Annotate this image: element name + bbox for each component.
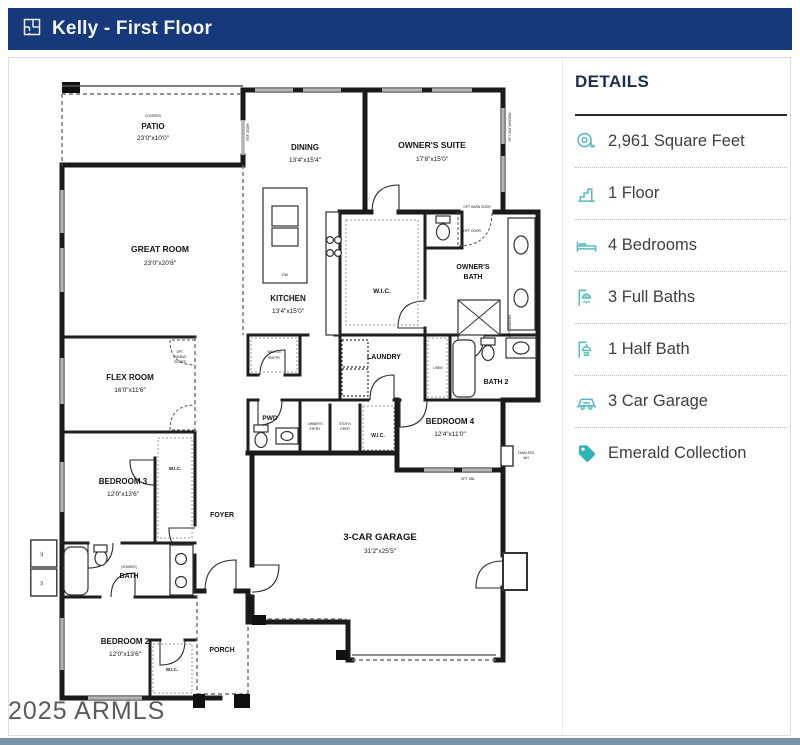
room-dims-owners-suite: 17'8"x15'0" bbox=[416, 156, 449, 163]
ann-stop-2: DROP bbox=[340, 427, 349, 431]
corner-blocks bbox=[62, 82, 348, 708]
stairs-icon bbox=[575, 182, 598, 205]
room-dims-great-room: 23'0"x20'8" bbox=[144, 260, 177, 267]
detail-item-garage: 3 Car Garage bbox=[575, 376, 787, 428]
room-dims-flex: 16'0"x11'6" bbox=[114, 387, 146, 394]
room-label-pwd: PWD bbox=[262, 415, 277, 422]
ann-pantry-2: PANTRY bbox=[268, 356, 282, 360]
room-label-bath2: BATH 2 bbox=[484, 379, 509, 386]
room-label-garage: 3-CAR GARAGE bbox=[343, 532, 416, 543]
detail-label: 1 Half Bath bbox=[608, 340, 690, 359]
room-label-owners-bath-2: BATH bbox=[464, 274, 483, 281]
room-dims-dining: 13'4"x15'4" bbox=[289, 157, 322, 164]
floorplan-icon bbox=[22, 17, 42, 42]
ann-ac-1: AC bbox=[40, 551, 44, 556]
detail-label: 2,961 Square Feet bbox=[608, 132, 745, 151]
detail-item-square-feet: 2,961 Square Feet bbox=[575, 116, 787, 168]
room-label-porch: PORCH bbox=[209, 647, 234, 654]
floor-plan: COVERED PATIO 23'0"x10'0" DINING 13'4"x1… bbox=[30, 70, 545, 732]
ann-opt-double-1: OPT. bbox=[176, 350, 183, 354]
room-label-owners-bath-1: OWNER'S bbox=[456, 264, 489, 271]
room-label-bath-shared-tag: (SHARED) bbox=[121, 565, 136, 569]
ann-linen: LINEN bbox=[433, 366, 443, 370]
room-label-wic-bed4: W.I.C. bbox=[371, 433, 385, 439]
room-dims-bedroom3: 12'0"x13'6" bbox=[107, 491, 140, 498]
header-bar: Kelly - First Floor bbox=[8, 8, 792, 50]
ann-dw: DW bbox=[282, 273, 289, 277]
ann-ref-door: REF. DOOR bbox=[246, 123, 250, 141]
ann-owners-entry-2: ENTRY bbox=[310, 427, 322, 431]
shower-icon bbox=[575, 338, 598, 361]
detail-label: 3 Car Garage bbox=[608, 392, 708, 411]
room-label-patio-tag: COVERED bbox=[145, 114, 161, 118]
room-label-patio: PATIO bbox=[141, 122, 164, 131]
ann-owners-entry-1: OWNER'S bbox=[308, 422, 323, 426]
tape-measure-icon bbox=[575, 130, 598, 153]
room-dims-kitchen: 13'4"x15'0" bbox=[272, 308, 305, 315]
car-icon bbox=[575, 390, 598, 413]
armls-watermark: 2025 ARMLS bbox=[8, 697, 165, 726]
detail-item-half-baths: 1 Half Bath bbox=[575, 324, 787, 376]
room-label-great-room: GREAT ROOM bbox=[131, 244, 189, 254]
ann-pantry-1: WALK-IN bbox=[267, 350, 281, 354]
room-dims-bedroom4: 12'4"x11'0" bbox=[434, 431, 466, 438]
tag-icon bbox=[575, 442, 598, 465]
ann-opt-bay-window: OPT. BAY WINDOW bbox=[508, 113, 512, 142]
header-title: Kelly - First Floor bbox=[52, 18, 212, 40]
detail-item-bedrooms: 4 Bedrooms bbox=[575, 220, 787, 272]
room-label-wic-owner: W.I.C. bbox=[373, 288, 391, 295]
room-label-dining: DINING bbox=[291, 143, 319, 152]
details-title: DETAILS bbox=[575, 72, 787, 92]
ann-stop-1: STOP N bbox=[339, 422, 351, 426]
detail-label: Emerald Collection bbox=[608, 444, 746, 463]
ann-opt-double-3: DOORS bbox=[174, 360, 186, 364]
detail-label: 4 Bedrooms bbox=[608, 236, 697, 255]
bathtub-icon bbox=[575, 286, 598, 309]
detail-label: 1 Floor bbox=[608, 184, 659, 203]
room-label-kitchen: KITCHEN bbox=[270, 294, 306, 303]
room-label-owners-suite: OWNER'S SUITE bbox=[398, 140, 466, 150]
room-dims-garage: 31'2"x25'5" bbox=[364, 548, 397, 555]
room-dims-patio: 23'0"x10'0" bbox=[137, 135, 170, 142]
ann-opt-double-2: DOUBLE bbox=[173, 355, 186, 359]
detail-item-full-baths: 3 Full Baths bbox=[575, 272, 787, 324]
ann-tankless-1: TANKLESS bbox=[518, 451, 534, 455]
room-label-laundry: LAUNDRY bbox=[367, 354, 401, 361]
detail-label: 3 Full Baths bbox=[608, 288, 695, 307]
ann-opt-barn-door: OPT. BARN DOOR bbox=[463, 205, 491, 209]
dashed-edges bbox=[62, 94, 496, 694]
ann-opt-window: OPT. WINDOW bbox=[508, 315, 512, 337]
room-label-foyer: FOYER bbox=[210, 512, 234, 519]
ann-opt-door: OPT. DOOR bbox=[463, 229, 481, 233]
detail-item-collection: Emerald Collection bbox=[575, 428, 787, 479]
detail-item-floors: 1 Floor bbox=[575, 168, 787, 220]
ann-ac-2: AC bbox=[40, 580, 44, 585]
bottom-band bbox=[0, 738, 800, 745]
room-label-bedroom3: BEDROOM 3 bbox=[99, 477, 148, 486]
room-label-bedroom4: BEDROOM 4 bbox=[426, 417, 475, 426]
ann-tankless-2: WH bbox=[523, 456, 529, 460]
panel-divider bbox=[562, 58, 563, 735]
room-label-flex: FLEX ROOM bbox=[106, 373, 154, 382]
ann-opt-dbl: OPT. DBL bbox=[461, 477, 475, 481]
window-marks bbox=[62, 90, 503, 698]
room-label-bedroom2: BEDROOM 2 bbox=[101, 637, 150, 646]
room-label-wic-bed3: W.I.C. bbox=[169, 466, 181, 471]
room-label-wic-bed2: W.I.C. bbox=[166, 667, 178, 672]
details-panel: DETAILS 2,961 Square Feet 1 Floor 4 Bedr… bbox=[575, 72, 787, 479]
bed-icon bbox=[575, 234, 598, 257]
room-dims-bedroom2: 12'0"x13'6" bbox=[109, 651, 142, 658]
room-label-bath-shared: BATH bbox=[120, 573, 139, 580]
